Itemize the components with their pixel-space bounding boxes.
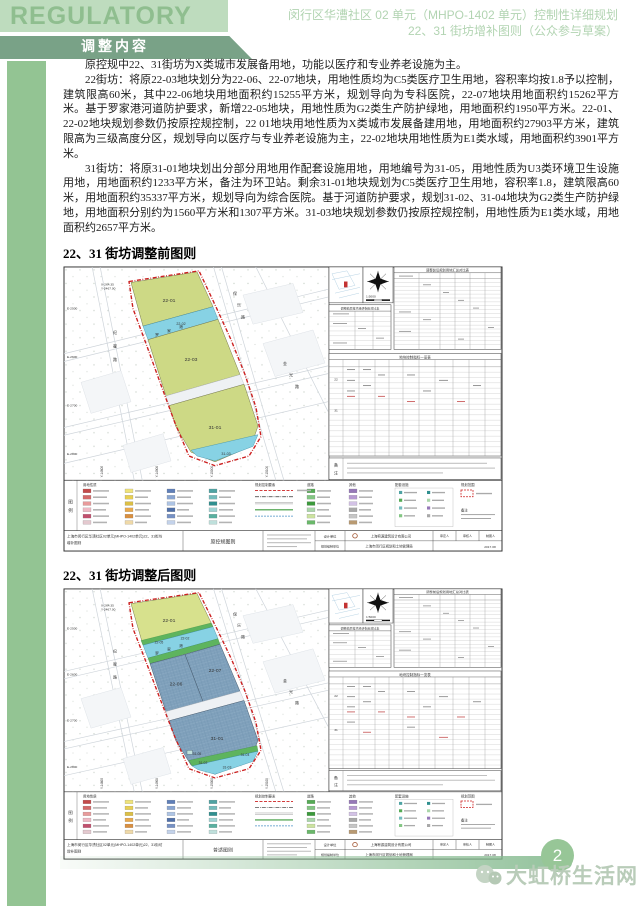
- svg-text:22-01: 22-01: [163, 297, 176, 303]
- legend-chip: [349, 489, 357, 493]
- legend-chip: [349, 830, 357, 834]
- svg-text:上海市闵行区华漕社区02单元(MHPO-1402单元)22、: 上海市闵行区华漕社区02单元(MHPO-1402单元)22、31街坊: [67, 533, 163, 538]
- locator-highlight: [344, 602, 348, 608]
- svg-text:Y-15000: Y-15000: [210, 465, 214, 477]
- svg-text:罗: 罗: [155, 332, 159, 336]
- svg-text:道路: 道路: [307, 482, 314, 487]
- svg-text:E-2500: E-2500: [67, 306, 78, 310]
- section-banner: 调整内容: [0, 36, 252, 59]
- svg-text:保: 保: [233, 291, 237, 296]
- legend-chip: [83, 830, 91, 834]
- document-title: 闵行区华漕社区 02 单元（MHPO-1402 单元）控制性详细规划 22、31…: [288, 7, 618, 39]
- legend-chip: [209, 507, 217, 511]
- svg-text:光: 光: [289, 689, 293, 694]
- legend-chip: [307, 800, 315, 804]
- svg-text:罗: 罗: [155, 651, 159, 655]
- svg-text:Y-14800: Y-14800: [100, 465, 104, 477]
- svg-text:E-2700: E-2700: [67, 718, 78, 722]
- scanned-plan-page: REGULATORY PLAN 闵行区华漕社区 02 单元（MHPO-1402 …: [0, 0, 640, 906]
- legend-chip: [125, 489, 133, 493]
- scale-text: 1:5000: [366, 615, 376, 619]
- legend-chip: [349, 501, 357, 505]
- svg-text:Y-2467.00: Y-2467.00: [101, 607, 116, 611]
- svg-text:家: 家: [167, 328, 171, 333]
- svg-text:Y-2467.00: Y-2467.00: [101, 286, 116, 290]
- svg-text:22-07: 22-07: [209, 668, 222, 674]
- svg-text:22-03: 22-03: [185, 357, 198, 363]
- legend-chip: [209, 495, 217, 499]
- svg-text:规划控制要素: 规划控制要素: [255, 482, 276, 487]
- legend-chip: [83, 514, 91, 518]
- svg-text:2017.08: 2017.08: [484, 545, 496, 549]
- legend-chip: [83, 501, 91, 505]
- legend-chip: [125, 495, 133, 499]
- svg-text:审定人: 审定人: [440, 533, 449, 538]
- scale-text: 1:5000: [366, 294, 376, 298]
- svg-text:31-04: 31-04: [241, 752, 250, 756]
- svg-text:规划编制单位: 规划编制单位: [321, 543, 339, 548]
- svg-text:港: 港: [179, 324, 183, 329]
- figure-after-map: 22-01 22-05 22-02 22-06 22-07 31-01 31-0…: [63, 588, 503, 860]
- legend-chip: [349, 520, 357, 524]
- north-compass: 1:5000: [363, 588, 393, 622]
- locator-map: [329, 588, 363, 622]
- legend-chip: [209, 501, 217, 505]
- legend-chip: [307, 495, 315, 499]
- legend-chip: [209, 520, 217, 524]
- svg-text:E-2700: E-2700: [67, 403, 78, 407]
- main-content: 原控规中22、31街坊为X类城市发展备用地，功能以医疗和专业养老设施为主。 22…: [63, 58, 619, 860]
- svg-text:注: 注: [334, 782, 338, 787]
- svg-text:港: 港: [179, 643, 183, 648]
- table-landuse-summary: 调整前后规划用地汇总对比表: [394, 267, 501, 349]
- sheet-name: 普适图则: [213, 846, 233, 853]
- legend-chip: [209, 806, 217, 810]
- svg-text:22: 22: [334, 377, 338, 381]
- svg-text:Y-15000: Y-15000: [210, 777, 214, 788]
- svg-text:其他: 其他: [349, 482, 356, 487]
- svg-text:规划控制要素: 规划控制要素: [255, 793, 276, 798]
- notes-box: 备 注: [329, 458, 501, 479]
- svg-text:22-06: 22-06: [170, 681, 183, 687]
- legend-chip: [209, 800, 217, 804]
- legend-chip: [125, 501, 133, 505]
- legend-chip: [167, 501, 175, 505]
- table-economic-indicators: 调整前后技术经济指标对比表: [329, 304, 391, 349]
- legend-chip: [167, 520, 175, 524]
- svg-text:纪: 纪: [113, 648, 117, 653]
- svg-text:增补图则: 增补图则: [67, 848, 82, 853]
- legend-chip: [125, 812, 133, 816]
- svg-text:路: 路: [295, 384, 299, 389]
- legend-chip: [83, 812, 91, 816]
- svg-text:22-02: 22-02: [181, 636, 190, 640]
- figure-before: 22-01 22-03 31-01 22-02 31-03 罗 家 港 纪 翟 …: [63, 266, 619, 552]
- svg-text:调整前后技术经济指标对比表: 调整前后技术经济指标对比表: [341, 625, 380, 630]
- svg-text:规划范围: 规划范围: [461, 793, 475, 798]
- figure-after: 22-01 22-05 22-02 22-06 22-07 31-01 31-0…: [63, 588, 619, 860]
- svg-text:Y-15100: Y-15100: [265, 465, 269, 477]
- svg-text:规划范围: 规划范围: [461, 482, 475, 487]
- svg-text:31-01: 31-01: [211, 736, 224, 742]
- legend-chip: [167, 824, 175, 828]
- legend-chip: [125, 514, 133, 518]
- svg-text:例: 例: [68, 507, 73, 514]
- legend-chip: [307, 501, 315, 505]
- legend-chip: [167, 507, 175, 511]
- section-banner-label: 调整内容: [0, 36, 230, 59]
- legend-chip: [209, 830, 217, 834]
- svg-text:地块控制指标一览表: 地块控制指标一览表: [399, 354, 431, 359]
- legend-chip: [209, 818, 217, 822]
- svg-text:上海市闵行区规划和土地管理局: 上海市闵行区规划和土地管理局: [365, 543, 413, 548]
- notes-box: 备 注: [329, 770, 501, 790]
- table-economic-indicators: 调整前后技术经济指标对比表: [329, 624, 391, 666]
- svg-text:路: 路: [241, 314, 245, 319]
- document-title-line1: 闵行区华漕社区 02 单元（MHPO-1402 单元）控制性详细规划: [288, 7, 618, 23]
- svg-text:E-2600: E-2600: [67, 672, 78, 676]
- legend-chip: [125, 800, 133, 804]
- svg-text:路: 路: [241, 634, 245, 639]
- svg-text:家: 家: [167, 646, 171, 651]
- svg-text:道路: 道路: [307, 793, 315, 798]
- svg-text:金: 金: [283, 678, 287, 683]
- legend-chip: [349, 507, 357, 511]
- legend-chip: [167, 806, 175, 810]
- body-paragraph: 原控规中22、31街坊为X类城市发展备用地，功能以医疗和专业养老设施为主。: [63, 58, 619, 73]
- legend-chip: [125, 806, 133, 810]
- legend-chip: [307, 818, 315, 822]
- legend-chip: [307, 806, 315, 810]
- legend-chip: [167, 495, 175, 499]
- svg-text:用地性质: 用地性质: [83, 482, 97, 487]
- svg-text:审定人: 审定人: [440, 841, 449, 846]
- legend-chip: [307, 520, 315, 524]
- legend-chip: [307, 830, 315, 834]
- sheet-name: 原控规图则: [211, 538, 236, 545]
- svg-text:31-03: 31-03: [223, 765, 232, 769]
- legend-chip: [167, 830, 175, 834]
- svg-text:审核人: 审核人: [463, 533, 472, 538]
- locator-map: [329, 267, 363, 303]
- svg-text:注: 注: [334, 470, 338, 475]
- svg-text:其他: 其他: [349, 793, 357, 798]
- legend-chip: [349, 818, 357, 822]
- svg-text:乐: 乐: [237, 302, 241, 307]
- svg-text:制图人: 制图人: [486, 533, 495, 538]
- svg-text:31-03: 31-03: [221, 452, 230, 456]
- legend-chip: [83, 800, 91, 804]
- legend-chip: [125, 520, 133, 524]
- legend-chip: [125, 818, 133, 822]
- legend-chip: [349, 800, 357, 804]
- svg-text:上海市闵行区华漕社区02单元(MHPO-1402单元)22、: 上海市闵行区华漕社区02单元(MHPO-1402单元)22、31街坊: [67, 842, 163, 847]
- svg-text:金: 金: [283, 361, 287, 366]
- body-paragraph: 31街坊：将原31-01地块划出分部分用地用作配套设施用地，用地编号为31-05…: [63, 162, 619, 236]
- legend-chip: [167, 489, 175, 493]
- svg-text:X-264.35: X-264.35: [101, 282, 114, 286]
- svg-text:上海宥源建筑设计有限公司: 上海宥源建筑设计有限公司: [371, 533, 412, 538]
- svg-text:备注: 备注: [461, 507, 468, 512]
- table-plot-control: 地块控制指标一览表: [329, 671, 501, 769]
- legend-chip: [125, 830, 133, 834]
- regulatory-plan-logo-box: REGULATORY PLAN: [0, 0, 228, 32]
- svg-text:路: 路: [113, 357, 117, 362]
- legend-chip: [349, 806, 357, 810]
- svg-text:审核人: 审核人: [463, 841, 472, 846]
- svg-text:31-05: 31-05: [193, 752, 202, 756]
- svg-text:乐: 乐: [237, 622, 241, 627]
- svg-text:设计单位: 设计单位: [324, 533, 337, 538]
- svg-text:Y-15100: Y-15100: [265, 777, 269, 788]
- svg-text:保: 保: [233, 611, 237, 616]
- svg-text:31: 31: [334, 408, 338, 412]
- legend-chip: [349, 514, 357, 518]
- legend-chip: [307, 824, 315, 828]
- legend-chip: [209, 489, 217, 493]
- svg-text:备: 备: [334, 462, 338, 467]
- legend-chip: [83, 818, 91, 822]
- legend-chip: [167, 800, 175, 804]
- legend-chip: [209, 514, 217, 518]
- svg-text:备注: 备注: [461, 817, 469, 822]
- svg-text:31-02: 31-02: [199, 761, 208, 765]
- svg-text:配套设施: 配套设施: [395, 793, 409, 798]
- svg-text:翟: 翟: [113, 343, 117, 348]
- figure-after-heading: 22、31 街坊调整后图则: [63, 565, 619, 584]
- svg-text:光: 光: [289, 372, 293, 377]
- legend-chip: [167, 812, 175, 816]
- legend-chip: [83, 495, 91, 499]
- legend-chip: [167, 818, 175, 822]
- svg-text:调整前后规划用地汇总对比表: 调整前后规划用地汇总对比表: [426, 589, 470, 594]
- svg-text:翟: 翟: [113, 662, 117, 666]
- north-compass: 1:5000: [363, 267, 393, 303]
- legend-chip: [83, 824, 91, 828]
- legend-chip: [83, 520, 91, 524]
- legend-chip: [209, 812, 217, 816]
- svg-text:路: 路: [295, 700, 299, 705]
- legend-chip: [307, 812, 315, 816]
- legend-chip: [167, 514, 175, 518]
- svg-text:地块控制指标一览表: 地块控制指标一览表: [399, 672, 431, 677]
- legend-chip: [83, 489, 91, 493]
- svg-text:上海宥源建筑设计有限公司: 上海宥源建筑设计有限公司: [371, 842, 412, 847]
- legend-chip: [307, 514, 315, 518]
- body-paragraph: 22街坊：将原22-03地块划分为22-06、22-07地块，用地性质均为C5类…: [63, 73, 619, 162]
- svg-text:22-01: 22-01: [163, 618, 176, 624]
- svg-text:用地性质: 用地性质: [83, 793, 97, 798]
- svg-text:制图人: 制图人: [486, 841, 495, 846]
- svg-text:31: 31: [334, 728, 338, 732]
- figure-before-map: 22-01 22-03 31-01 22-02 31-03 罗 家 港 纪 翟 …: [63, 266, 503, 552]
- svg-text:调整前后规划用地汇总对比表: 调整前后规划用地汇总对比表: [426, 267, 470, 272]
- svg-text:设计单位: 设计单位: [324, 842, 337, 847]
- left-green-sidebar: [7, 61, 46, 906]
- document-title-line2: 22、31 街坊增补图则（公众参与草案）: [288, 23, 618, 39]
- legend-chip: [125, 824, 133, 828]
- figure-before-heading: 22、31 街坊调整前图则: [63, 243, 619, 262]
- watermark-logo-icon: [475, 862, 503, 888]
- svg-text:E-2500: E-2500: [67, 626, 78, 630]
- svg-text:路: 路: [113, 674, 117, 679]
- svg-text:Y-14900: Y-14900: [155, 465, 159, 477]
- svg-text:例: 例: [68, 817, 72, 824]
- legend-chip: [349, 495, 357, 499]
- svg-text:E-2800: E-2800: [67, 452, 78, 456]
- watermark-text: 大虹桥生活网: [506, 860, 638, 890]
- watermark: 大虹桥生活网: [475, 860, 638, 890]
- svg-text:31-01: 31-01: [209, 424, 222, 430]
- table-landuse-summary: 调整前后规划用地汇总对比表: [394, 588, 501, 666]
- svg-text:22: 22: [334, 693, 338, 697]
- legend-chip: [125, 507, 133, 511]
- svg-text:E-2600: E-2600: [67, 355, 78, 359]
- legend-chip: [209, 824, 217, 828]
- svg-text:备: 备: [334, 775, 338, 780]
- table-plot-control: 地块控制指标一览表: [329, 353, 501, 456]
- legend-chip: [349, 812, 357, 816]
- legend-chip: [307, 507, 315, 511]
- legend-chip: [83, 507, 91, 511]
- svg-text:调整前后技术经济指标对比表: 调整前后技术经济指标对比表: [341, 305, 380, 310]
- legend-chip: [349, 824, 357, 828]
- svg-text:纪: 纪: [113, 329, 117, 334]
- svg-text:22-05: 22-05: [155, 640, 164, 644]
- svg-text:配套设施: 配套设施: [395, 482, 409, 487]
- svg-text:Y-14800: Y-14800: [100, 777, 104, 788]
- locator-highlight: [344, 281, 348, 287]
- legend-chip: [83, 806, 91, 810]
- svg-text:E-2800: E-2800: [67, 764, 78, 768]
- svg-text:增补图则: 增补图则: [67, 540, 82, 545]
- svg-text:Y-14900: Y-14900: [155, 777, 159, 788]
